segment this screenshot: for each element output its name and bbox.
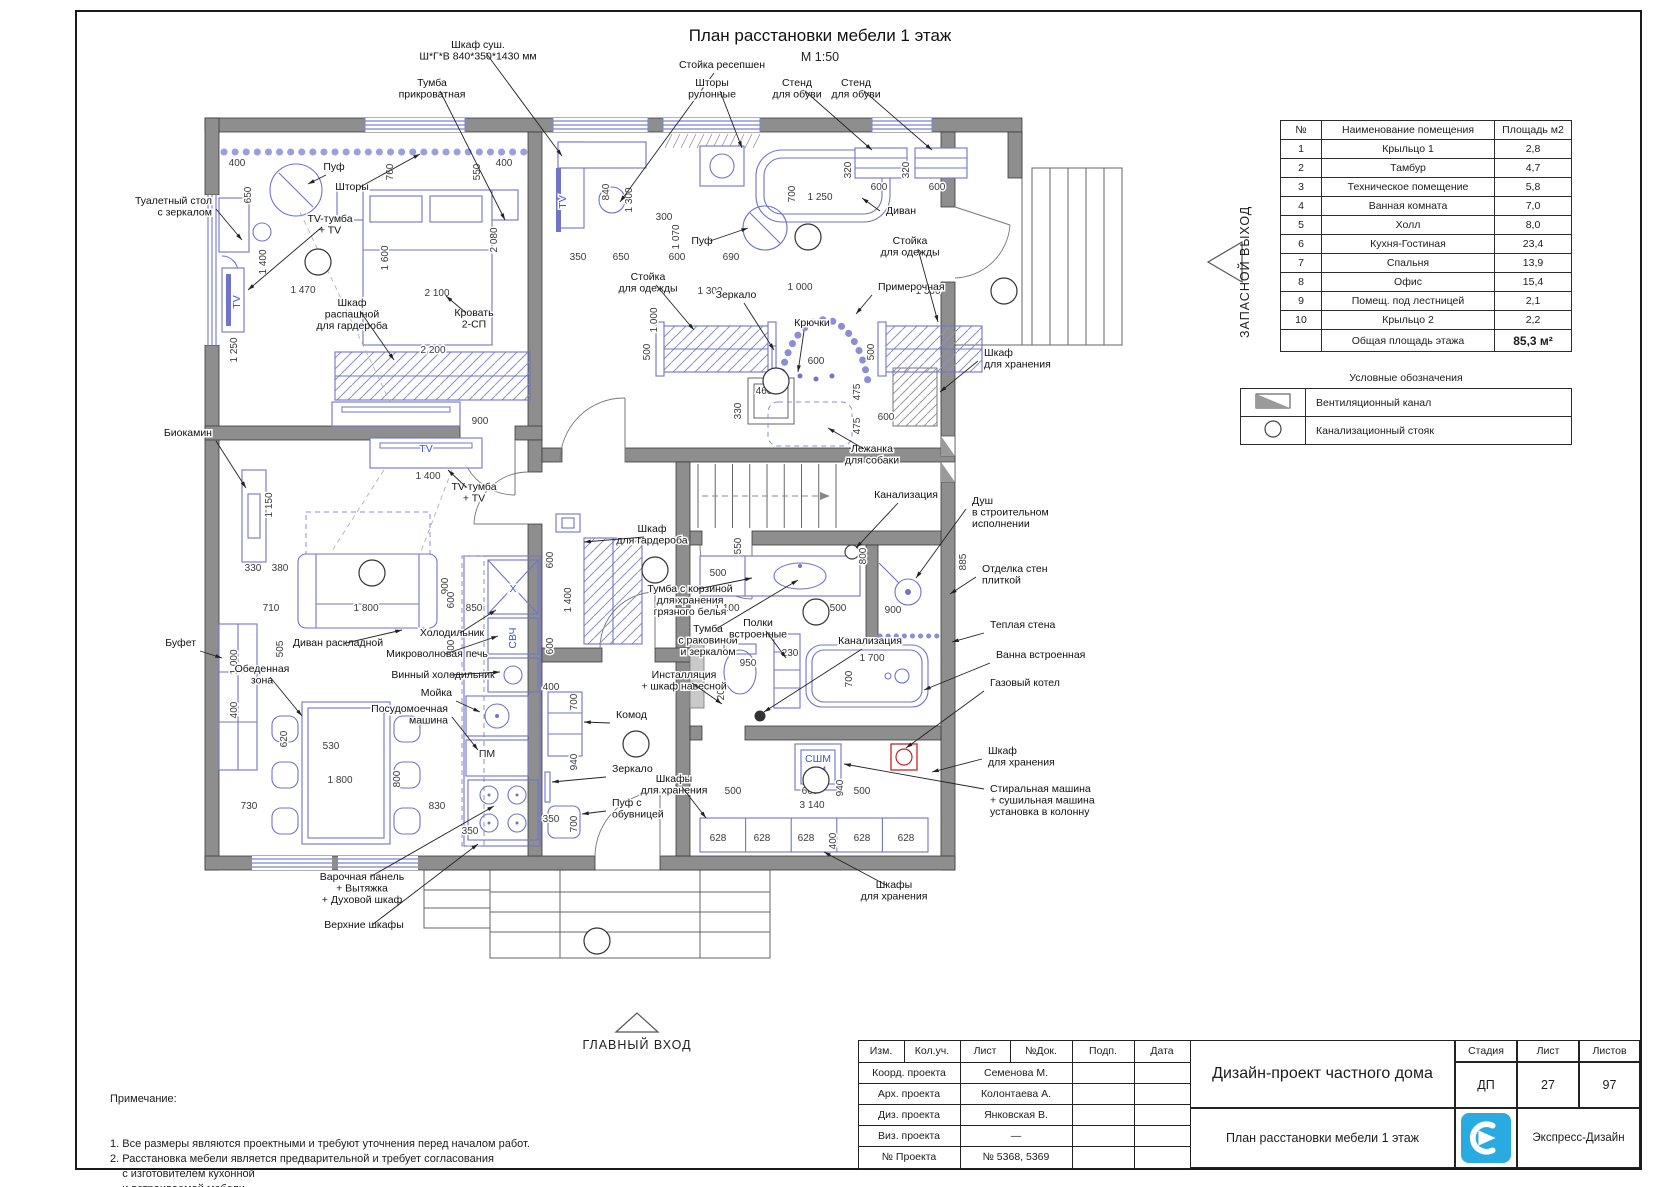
svg-text:Шторы: Шторы <box>695 77 729 89</box>
svg-text:830: 830 <box>429 801 446 812</box>
svg-text:400: 400 <box>828 832 839 849</box>
svg-text:Стойка: Стойка <box>631 271 666 283</box>
svg-text:TV: TV <box>557 195 569 208</box>
svg-text:350: 350 <box>543 814 560 825</box>
title-block-cell <box>1134 1125 1191 1147</box>
svg-text:+ Духовой шкаф: + Духовой шкаф <box>322 894 403 906</box>
svg-text:600: 600 <box>545 637 556 654</box>
svg-text:TV-тумба: TV-тумба <box>451 481 496 493</box>
sewer-riser-icon <box>1241 417 1306 445</box>
svg-text:с зеркалом: с зеркалом <box>157 207 212 219</box>
svg-text:1 800: 1 800 <box>353 603 378 614</box>
title-block-cell <box>1072 1083 1135 1105</box>
svg-text:1 000: 1 000 <box>787 282 812 293</box>
svg-text:620: 620 <box>279 730 290 747</box>
legend: Условные обозначения Вентиляционный кана… <box>1240 372 1572 445</box>
svg-text:2-СП: 2-СП <box>462 319 486 331</box>
svg-text:Холодильник: Холодильник <box>420 627 485 639</box>
title-block-cell <box>1134 1104 1191 1126</box>
room-table-cell: 4 <box>1281 197 1322 216</box>
svg-text:для одежды: для одежды <box>618 283 677 295</box>
room-schedule-table: №Наименование помещенияПлощадь м21Крыльц… <box>1280 120 1572 352</box>
svg-text:600: 600 <box>545 551 556 568</box>
svg-text:1 000: 1 000 <box>649 307 660 332</box>
title-block-cell <box>1134 1062 1191 1084</box>
svg-text:475: 475 <box>852 417 863 434</box>
svg-text:СШМ: СШМ <box>805 753 831 765</box>
room-table-cell: 2 <box>1281 159 1322 178</box>
title-block-cell: Колонтаева А. <box>960 1083 1073 1105</box>
legend-title: Условные обозначения <box>1240 372 1572 384</box>
svg-text:3 140: 3 140 <box>799 800 824 811</box>
svg-text:СВЧ: СВЧ <box>507 627 519 648</box>
svg-text:330: 330 <box>733 402 744 419</box>
svg-text:Шкафы: Шкафы <box>656 773 692 785</box>
room-table-cell: Ванная комната <box>1322 197 1495 216</box>
room-table-cell: Помещ. под лестницей <box>1322 292 1495 311</box>
svg-text:628: 628 <box>754 833 771 844</box>
svg-text:1 400: 1 400 <box>415 471 440 482</box>
svg-text:505: 505 <box>275 640 286 657</box>
svg-text:Тумба: Тумба <box>693 623 723 635</box>
room-table-cell: 8,0 <box>1495 216 1572 235</box>
room-table-cell: 9 <box>1281 292 1322 311</box>
svg-text:500: 500 <box>710 568 727 579</box>
svg-text:700: 700 <box>569 693 580 710</box>
svg-text:475: 475 <box>852 383 863 400</box>
svg-text:760: 760 <box>385 163 396 180</box>
svg-text:730: 730 <box>241 801 258 812</box>
svg-text:Душ: Душ <box>972 495 993 507</box>
svg-text:Буфет: Буфет <box>165 637 196 649</box>
svg-text:грязного белья: грязного белья <box>654 606 727 618</box>
svg-text:Крючки: Крючки <box>794 317 830 329</box>
svg-text:330: 330 <box>245 563 262 574</box>
title-block-cell: № Проекта <box>858 1146 961 1169</box>
main-entrance-label: ГЛАВНЫЙ ВХОД <box>547 1038 727 1052</box>
svg-text:628: 628 <box>898 833 915 844</box>
svg-text:710: 710 <box>263 603 280 614</box>
svg-text:700: 700 <box>787 185 798 202</box>
room-table-cell: Крыльцо 1 <box>1322 140 1495 159</box>
svg-text:885: 885 <box>958 553 969 570</box>
svg-text:для хранения: для хранения <box>988 757 1055 769</box>
svg-text:исполнении: исполнении <box>972 518 1030 530</box>
svg-text:628: 628 <box>854 833 871 844</box>
plan-label: Пуф собувницей <box>582 797 664 821</box>
svg-text:Шкаф суш.: Шкаф суш. <box>451 39 505 51</box>
room-table-cell: 7,0 <box>1495 197 1572 216</box>
svg-text:Отделка стен: Отделка стен <box>982 563 1048 575</box>
room-table-cell: 8 <box>1281 273 1322 292</box>
sheet-value: 27 <box>1517 1062 1579 1108</box>
svg-text:Полки: Полки <box>743 617 773 629</box>
room-table-cell: Тамбур <box>1322 159 1495 178</box>
plan-label: Диван раскладной <box>293 630 402 649</box>
svg-text:плиткой: плиткой <box>982 575 1021 587</box>
svg-text:1 250: 1 250 <box>807 192 832 203</box>
svg-text:1 400: 1 400 <box>258 249 269 274</box>
note-line: с изготовителем кухонной <box>110 1167 590 1182</box>
svg-text:1 300: 1 300 <box>624 187 635 212</box>
svg-text:530: 530 <box>323 741 340 752</box>
svg-text:Стойка: Стойка <box>893 235 928 247</box>
svg-text:600: 600 <box>871 182 888 193</box>
svg-text:Диван раскладной: Диван раскладной <box>293 637 383 649</box>
svg-text:Инсталляция: Инсталляция <box>652 669 717 681</box>
company-logo <box>1455 1108 1517 1168</box>
drawing-name: План расстановки мебели 1 этаж <box>1190 1108 1455 1168</box>
svg-text:500: 500 <box>830 603 847 614</box>
room-table-cell: Площадь м2 <box>1495 121 1572 140</box>
svg-text:690: 690 <box>723 252 740 263</box>
svg-text:TV: TV <box>419 443 432 455</box>
svg-text:300: 300 <box>656 212 673 223</box>
note-line: 2. Расстановка мебели является предварит… <box>110 1152 590 1167</box>
svg-text:для гардероба: для гардероба <box>616 535 687 547</box>
title-block-cell: Диз. проекта <box>858 1104 961 1126</box>
svg-text:850: 850 <box>466 603 483 614</box>
svg-text:2 100: 2 100 <box>424 288 449 299</box>
plan-label: Стенддля обуви <box>831 77 932 150</box>
title-block-cell <box>1072 1062 1135 1084</box>
svg-text:500: 500 <box>854 786 871 797</box>
svg-text:350: 350 <box>462 826 479 837</box>
svg-text:1 250: 1 250 <box>229 337 240 362</box>
room-table-cell: 5 <box>1281 216 1322 235</box>
emergency-exit-label: ЗАПАСНОЙ ВЫХОД <box>1238 168 1252 338</box>
plan-label: Винный холодильник <box>391 669 500 681</box>
svg-text:Комод: Комод <box>616 709 647 721</box>
room-table-cell: 7 <box>1281 254 1322 273</box>
title-block-cell: Изм. <box>858 1040 905 1063</box>
svg-text:1 600: 1 600 <box>380 245 391 270</box>
svg-text:Теплая стена: Теплая стена <box>990 619 1055 631</box>
svg-text:1 400: 1 400 <box>563 587 574 612</box>
title-block-cell: Семенова М. <box>960 1062 1073 1084</box>
title-block-cell: Виз. проекта <box>858 1125 961 1147</box>
plan-label: Стиральная машина+ сушильная машинаустан… <box>844 763 1095 818</box>
svg-text:зона: зона <box>251 675 273 687</box>
svg-text:Посудомоечная: Посудомоечная <box>371 703 448 715</box>
svg-text:Шкаф: Шкаф <box>984 347 1013 359</box>
svg-text:700: 700 <box>844 670 855 687</box>
svg-text:Шкаф: Шкаф <box>988 745 1017 757</box>
svg-text:Варочная панель: Варочная панель <box>320 871 405 883</box>
svg-text:для хранения: для хранения <box>657 595 724 607</box>
room-table-cell: 6 <box>1281 235 1322 254</box>
svg-text:Зеркало: Зеркало <box>716 289 757 301</box>
title-block-cell <box>1072 1146 1135 1169</box>
svg-text:320: 320 <box>901 161 912 178</box>
svg-text:для собаки: для собаки <box>845 455 899 467</box>
svg-text:Стенд: Стенд <box>841 77 871 89</box>
title-block-signatures: Изм.Кол.уч.Лист№Док.Подп.ДатаКоорд. прое… <box>858 1040 1190 1168</box>
svg-text:рулонные: рулонные <box>688 89 736 101</box>
svg-text:Примерочная: Примерочная <box>878 281 945 293</box>
total-label: Общая площадь этажа <box>1322 330 1495 352</box>
svg-text:400: 400 <box>229 158 246 169</box>
sheets-label: Листов <box>1579 1040 1640 1062</box>
svg-text:500: 500 <box>866 343 877 360</box>
svg-text:встроенные: встроенные <box>729 629 787 641</box>
svg-text:установка в колонну: установка в колонну <box>990 806 1090 818</box>
legend-label: Вентиляционный канал <box>1306 389 1572 417</box>
sheet-label: Лист <box>1517 1040 1579 1062</box>
svg-text:распашной: распашной <box>325 309 380 321</box>
title-block-cell: № 5368, 5369 <box>960 1146 1073 1169</box>
svg-text:Ванна встроенная: Ванна встроенная <box>996 649 1085 661</box>
svg-text:Пуф: Пуф <box>691 235 713 247</box>
svg-text:Верхние шкафы: Верхние шкафы <box>324 919 404 931</box>
svg-text:400: 400 <box>543 682 560 693</box>
note-line: и встраиваемой мебели. <box>110 1182 590 1187</box>
plan-label: Микроволновая печь <box>386 636 498 660</box>
svg-text:Диван: Диван <box>886 205 916 217</box>
room-table-cell: 1 <box>1281 140 1322 159</box>
svg-text:550: 550 <box>733 537 744 554</box>
sheets-value: 97 <box>1579 1062 1640 1108</box>
svg-text:Стиральная машина: Стиральная машина <box>990 783 1091 795</box>
svg-text:Канализация: Канализация <box>874 489 938 501</box>
svg-text:Пуф с: Пуф с <box>612 797 642 809</box>
svg-text:500: 500 <box>725 786 742 797</box>
svg-text:950: 950 <box>740 658 757 669</box>
svg-text:Стенд: Стенд <box>782 77 812 89</box>
title-block-cell: Лист <box>960 1040 1011 1063</box>
svg-text:+ сушильная машина: + сушильная машина <box>990 795 1095 807</box>
room-table-cell: Офис <box>1322 273 1495 292</box>
svg-text:Канализация: Канализация <box>838 635 902 647</box>
svg-text:TV-тумба: TV-тумба <box>307 213 352 225</box>
svg-text:для хранения: для хранения <box>641 785 708 797</box>
room-table-cell: Наименование помещения <box>1322 121 1495 140</box>
room-table-cell: 2,1 <box>1495 292 1572 311</box>
room-table-cell: Спальня <box>1322 254 1495 273</box>
svg-text:2 080: 2 080 <box>489 227 500 252</box>
plan-label: Теплая стена <box>952 619 1055 642</box>
room-table-cell: 4,7 <box>1495 159 1572 178</box>
logo-icon <box>1461 1113 1511 1163</box>
room-table-cell: Крыльцо 2 <box>1322 311 1495 330</box>
svg-text:600: 600 <box>929 182 946 193</box>
svg-text:400: 400 <box>496 158 513 169</box>
room-table-cell: Техническое помещение <box>1322 178 1495 197</box>
svg-text:для хранения: для хранения <box>861 891 928 903</box>
svg-text:Шкаф: Шкаф <box>338 297 367 309</box>
svg-text:TV: TV <box>231 295 243 308</box>
svg-text:Шкаф: Шкаф <box>638 523 667 535</box>
svg-text:Винный холодильник: Винный холодильник <box>391 669 495 681</box>
room-table-cell: № <box>1281 121 1322 140</box>
svg-text:600: 600 <box>669 252 686 263</box>
title-block-cell: Дата <box>1134 1040 1191 1063</box>
svg-text:900: 900 <box>885 605 902 616</box>
svg-text:500: 500 <box>642 343 653 360</box>
svg-text:Мойка: Мойка <box>421 687 452 699</box>
room-table-cell: 15,4 <box>1495 273 1572 292</box>
svg-text:Биокамин: Биокамин <box>164 427 212 439</box>
notes: Примечание: 1. Все размеры являются прое… <box>110 1062 590 1187</box>
svg-text:обувницей: обувницей <box>612 809 664 821</box>
svg-text:+ TV: + TV <box>463 493 485 505</box>
room-table-cell: Холл <box>1322 216 1495 235</box>
stage-label: Стадия <box>1455 1040 1517 1062</box>
notes-title: Примечание: <box>110 1092 590 1107</box>
plan-label: Шторы <box>335 154 420 193</box>
svg-text:900: 900 <box>472 416 489 427</box>
company-name: Экспресс-Дизайн <box>1517 1108 1640 1168</box>
svg-text:Туалетный стол: Туалетный стол <box>135 195 212 207</box>
project-title: Дизайн-проект частного дома <box>1190 1040 1455 1108</box>
svg-text:600: 600 <box>808 356 825 367</box>
svg-text:600: 600 <box>446 591 457 608</box>
svg-text:Микроволновая печь: Микроволновая печь <box>386 648 488 660</box>
title-block-cell: Арх. проекта <box>858 1083 961 1105</box>
svg-text:628: 628 <box>798 833 815 844</box>
svg-text:для хранения: для хранения <box>984 359 1051 371</box>
svg-text:+ Вытяжка: + Вытяжка <box>336 883 388 895</box>
room-table-cell: 3 <box>1281 178 1322 197</box>
plan-label: Шторырулонные <box>688 77 742 148</box>
svg-text:1 070: 1 070 <box>671 224 682 249</box>
svg-text:628: 628 <box>710 833 727 844</box>
svg-text:Шкафы: Шкафы <box>876 879 912 891</box>
svg-text:Зеркало: Зеркало <box>612 763 653 775</box>
stage-value: ДП <box>1455 1062 1517 1108</box>
title-block-cell: Подп. <box>1072 1040 1135 1063</box>
svg-text:400: 400 <box>229 701 240 718</box>
room-table-cell: 2,2 <box>1495 311 1572 330</box>
title-block: Изм.Кол.уч.Лист№Док.Подп.ДатаКоорд. прое… <box>858 1040 1640 1168</box>
svg-text:Шторы: Шторы <box>335 181 369 193</box>
svg-text:800: 800 <box>858 547 869 564</box>
svg-text:1 800: 1 800 <box>327 775 352 786</box>
svg-text:800: 800 <box>392 770 403 787</box>
svg-text:350: 350 <box>570 252 587 263</box>
page-title: План расстановки мебели 1 этаж <box>520 26 1120 46</box>
drawing-sheet: 4006501 4001 4702 1001 6002 2007605502 0… <box>0 0 1680 1187</box>
total-value: 85,3 м² <box>1495 330 1572 352</box>
svg-text:ПМ: ПМ <box>479 748 495 760</box>
svg-text:650: 650 <box>243 186 254 203</box>
svg-text:Пуф: Пуф <box>323 161 345 173</box>
svg-text:1 150: 1 150 <box>264 492 275 517</box>
svg-text:Газовый котел: Газовый котел <box>990 677 1060 689</box>
title-block-cell: Кол.уч. <box>904 1040 961 1063</box>
room-table-cell: 13,9 <box>1495 254 1572 273</box>
svg-text:600: 600 <box>878 412 895 423</box>
svg-text:700: 700 <box>569 815 580 832</box>
title-block-cell: Янковская В. <box>960 1104 1073 1126</box>
room-table-cell: 5,8 <box>1495 178 1572 197</box>
svg-text:840: 840 <box>601 183 612 200</box>
title-block-cell <box>1072 1125 1135 1147</box>
svg-text:X: X <box>509 583 516 595</box>
svg-text:1 700: 1 700 <box>859 653 884 664</box>
legend-label: Канализационный стояк <box>1306 417 1572 445</box>
page-scale: М 1:50 <box>520 50 1120 64</box>
svg-text:для одежды: для одежды <box>880 247 939 259</box>
svg-text:380: 380 <box>272 563 289 574</box>
svg-text:650: 650 <box>613 252 630 263</box>
title-block-cell: №Док. <box>1010 1040 1073 1063</box>
svg-text:в строительном: в строительном <box>972 507 1049 519</box>
room-table-cell: Кухня-Гостиная <box>1322 235 1495 254</box>
title-block-cell: Коорд. проекта <box>858 1062 961 1084</box>
plan-label: Стойкадля одежды <box>880 235 939 322</box>
svg-text:940: 940 <box>835 779 846 796</box>
vent-channel-icon <box>1241 389 1306 417</box>
svg-text:машина: машина <box>409 715 448 727</box>
title-block-cell <box>1134 1083 1191 1105</box>
svg-text:+ шкаф навесной: + шкаф навесной <box>641 681 727 693</box>
svg-text:+ TV: + TV <box>319 225 341 237</box>
svg-text:и зеркалом: и зеркалом <box>680 646 735 658</box>
svg-text:1 470: 1 470 <box>290 285 315 296</box>
room-table-cell: 2,8 <box>1495 140 1572 159</box>
room-table-cell: 23,4 <box>1495 235 1572 254</box>
room-table-cell: 10 <box>1281 311 1322 330</box>
svg-text:Тумба: Тумба <box>417 77 447 89</box>
svg-text:для гардероба: для гардероба <box>316 320 387 332</box>
title-block-cell <box>1072 1104 1135 1126</box>
svg-text:320: 320 <box>843 161 854 178</box>
note-line: 1. Все размеры являются проектными и тре… <box>110 1137 590 1152</box>
svg-text:2 200: 2 200 <box>420 345 445 356</box>
title-block-cell: — <box>960 1125 1073 1147</box>
svg-text:Обеденная: Обеденная <box>235 663 290 675</box>
svg-text:прикроватная: прикроватная <box>399 89 466 101</box>
svg-text:940: 940 <box>569 753 580 770</box>
title-block-cell <box>1134 1146 1191 1169</box>
